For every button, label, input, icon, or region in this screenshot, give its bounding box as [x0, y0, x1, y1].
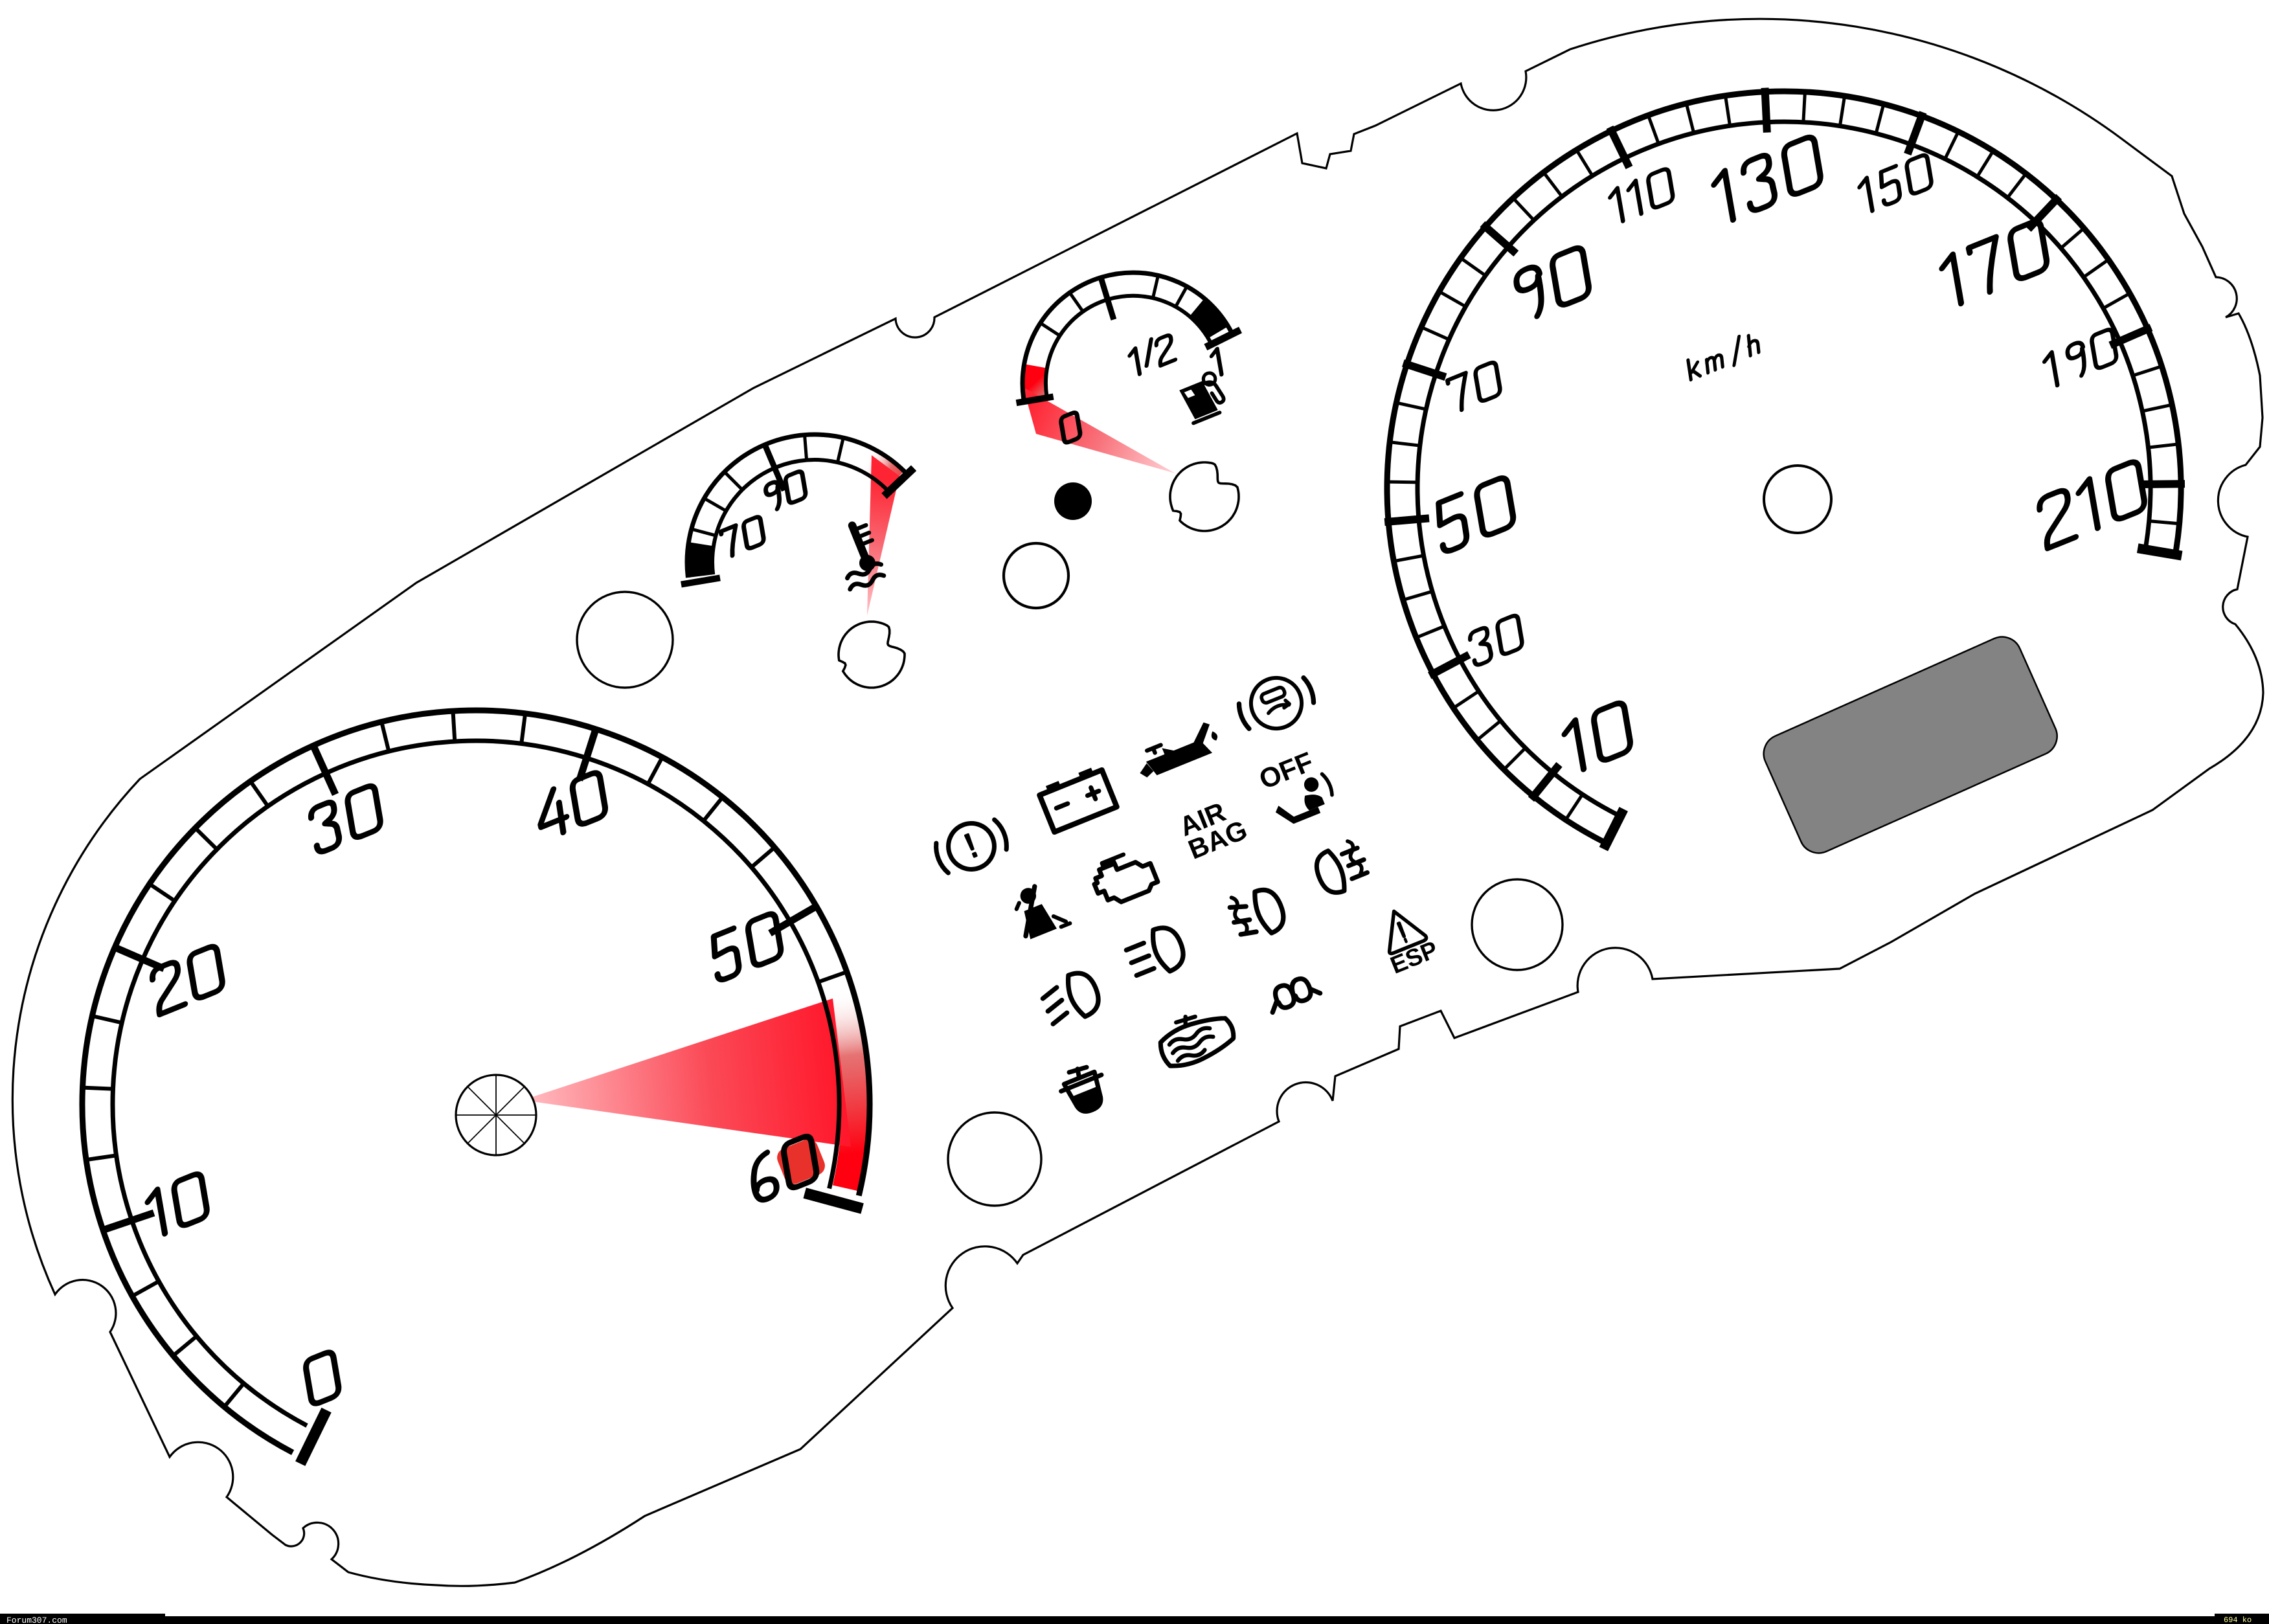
svg-text:Forum307.com: Forum307.com [6, 1616, 67, 1624]
svg-text:694 ko: 694 ko [2224, 1616, 2252, 1624]
